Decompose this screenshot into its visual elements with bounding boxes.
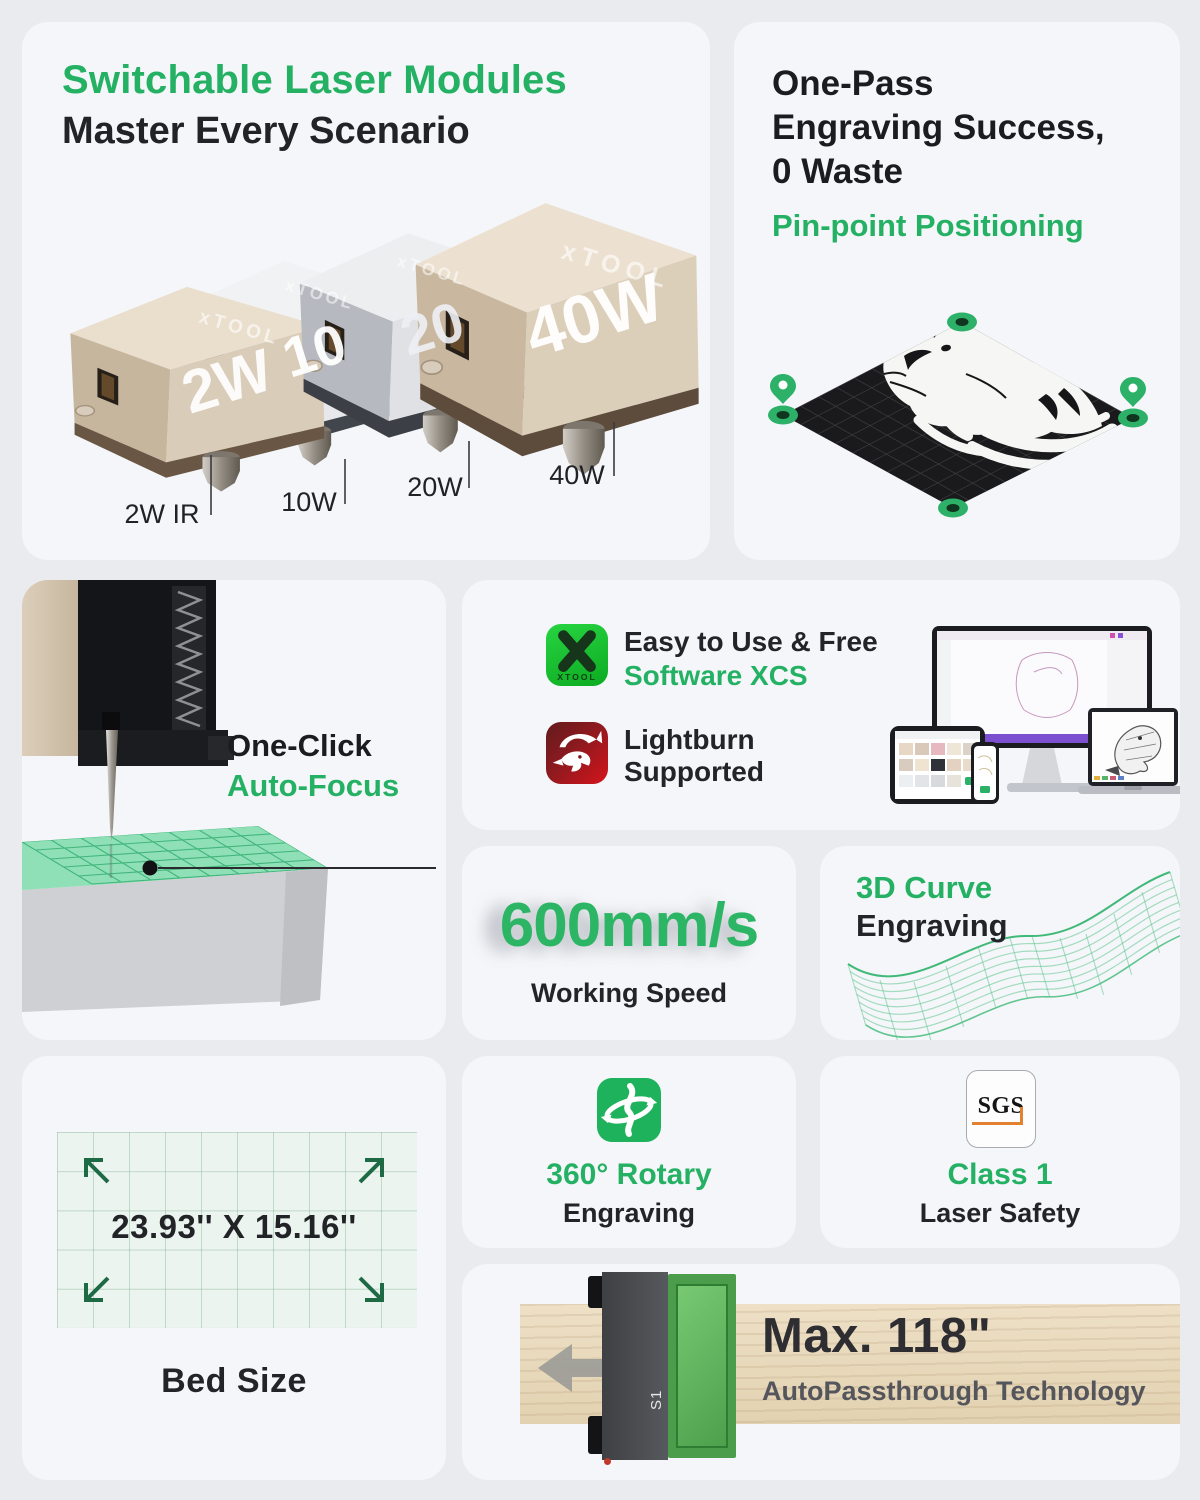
card-software: XTOOL Easy to Use & Free Software XCS Li…: [462, 580, 1180, 830]
bed-corner-arrows: [22, 1056, 446, 1480]
corner-arrow-icon: [360, 1160, 382, 1182]
machine-lid-window: [676, 1284, 728, 1448]
card-laser-safety: SGS Class 1 Laser Safety: [820, 1056, 1180, 1248]
auto-focus-illustration: [22, 580, 446, 1040]
corner-arrow-icon: [86, 1160, 108, 1182]
card-bed-size: 23.93'' X 15.16'' Bed Size: [22, 1056, 446, 1480]
machine-green-lid: [668, 1274, 736, 1458]
curve-line1: 3D Curve: [856, 870, 992, 906]
infographic-page: Switchable Laser Modules Master Every Sc…: [0, 0, 1200, 1500]
card-one-pass: One-Pass Engraving Success, 0 Waste Pin-…: [734, 22, 1180, 560]
auto-focus-line2: Auto-Focus: [227, 766, 399, 806]
sgs-logo-text: SGS: [967, 1093, 1035, 1120]
card-passthrough: S1 Max. 118" AutoPassthrough Technology: [462, 1264, 1180, 1480]
auto-focus-text: One-Click Auto-Focus: [227, 726, 399, 806]
devices-illustration: [462, 580, 1180, 830]
bed-size-label: Bed Size: [22, 1362, 446, 1401]
machine-bracket: [78, 730, 228, 766]
machine-body: [602, 1272, 668, 1460]
probe-collar: [102, 712, 120, 730]
corner-arrow-icon: [360, 1278, 382, 1300]
card-3d-curve: 3D Curve Engraving: [820, 846, 1180, 1040]
rotary-icon: [597, 1078, 661, 1142]
bed-dimensions: 23.93'' X 15.16'': [22, 1208, 446, 1246]
card-rotary: 360° Rotary Engraving: [462, 1056, 796, 1248]
sgs-badge: SGS: [966, 1070, 1036, 1148]
machine-model-label: S1: [648, 1390, 665, 1410]
curve-line2: Engraving: [856, 908, 1008, 944]
card-auto-focus: One-Click Auto-Focus: [22, 580, 446, 1040]
module-label-10w: 10W: [281, 487, 337, 517]
module-label-20w: 20W: [407, 472, 463, 502]
machine-indicator-dot: [604, 1458, 611, 1465]
corner-arrow-icon: [86, 1278, 108, 1300]
pinpoint-positioning-illustration: [734, 22, 1180, 560]
passthrough-value: Max. 118": [762, 1308, 991, 1364]
safety-line1: Class 1: [820, 1158, 1180, 1192]
material-block-side: [280, 868, 328, 1006]
callout-dot: [143, 861, 158, 876]
card-working-speed: 600mm/s Working Speed: [462, 846, 796, 1040]
sgs-logo-underline: [972, 1122, 1022, 1125]
module-label-40w: 40W: [549, 460, 605, 490]
focus-probe-needle: [106, 730, 118, 841]
rotary-line1: 360° Rotary: [462, 1158, 796, 1192]
passthrough-label: AutoPassthrough Technology: [762, 1376, 1146, 1407]
sgs-logo-tick: [1020, 1107, 1023, 1125]
laser-modules-illustration: xTOOL xTOOL xTOOL xTOOL 2W 10 20 40W 2W …: [22, 22, 710, 560]
speed-value: 600mm/s: [462, 890, 796, 961]
card-laser-modules: Switchable Laser Modules Master Every Sc…: [22, 22, 710, 560]
auto-focus-line1: One-Click: [227, 726, 399, 766]
rotary-line2: Engraving: [462, 1198, 796, 1229]
speed-label: Working Speed: [462, 978, 796, 1009]
module-label-2wir: 2W IR: [124, 499, 199, 529]
safety-line2: Laser Safety: [820, 1198, 1180, 1229]
